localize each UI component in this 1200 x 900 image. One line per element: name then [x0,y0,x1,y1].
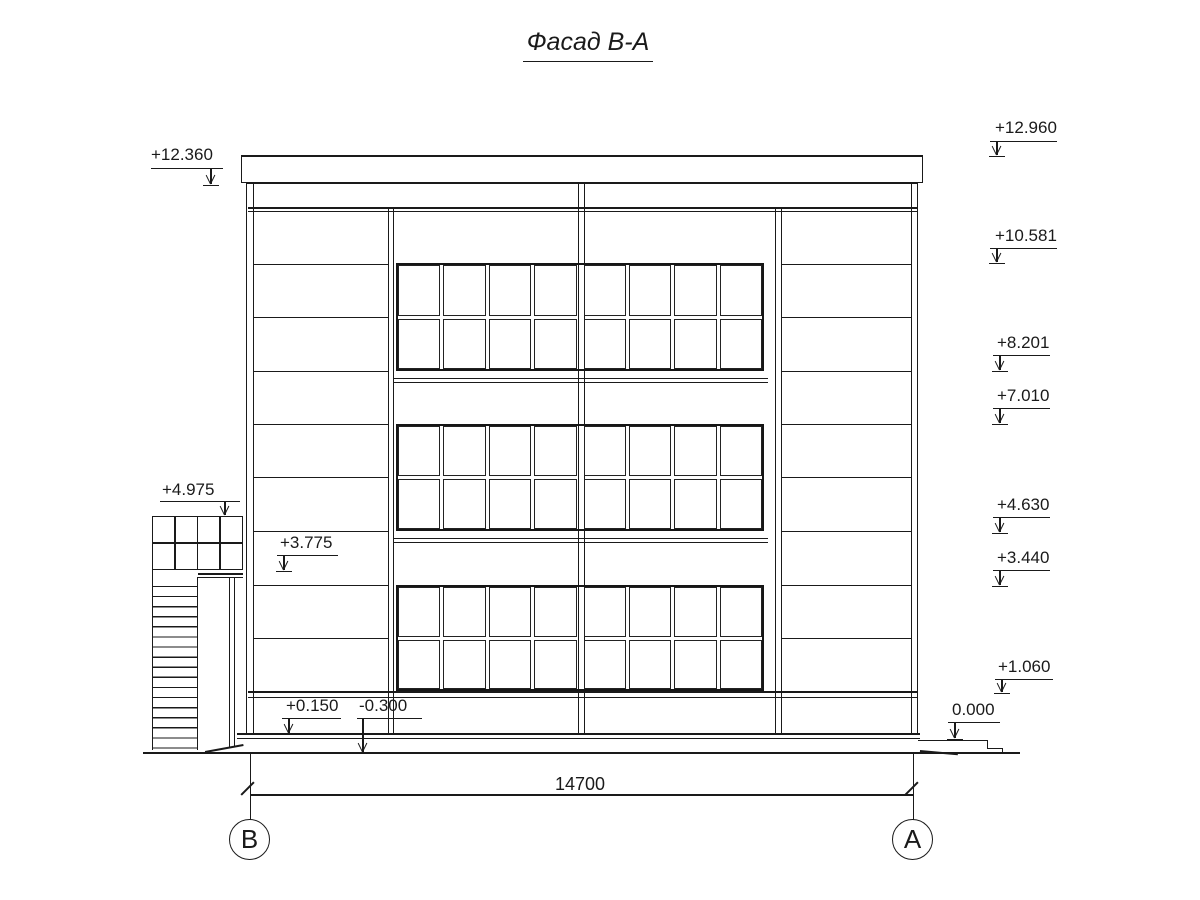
elevation-arrow-tick [992,533,1008,534]
window-pane [720,587,762,637]
stair-glazing-pane [153,517,174,542]
elevation-arrow-tick [994,693,1010,694]
porch-top-line [198,573,243,575]
elev-label-3440: +3.440 [997,549,1049,567]
window-pane [584,640,626,690]
elevation-arrow-tick [203,185,219,186]
elevation-arrow-tick [947,739,963,740]
elevation-underline [160,501,240,502]
stair-tower-glazing [152,516,243,570]
elev-label-m0300: -0.300 [359,697,407,715]
elevation-underline [993,355,1050,356]
elevation-arrow-tick [992,424,1008,425]
window-group-floor-1 [396,585,764,691]
ground-line [143,752,1020,754]
elevation-underline [995,679,1053,680]
window-pane [584,587,626,637]
window-pane [720,640,762,690]
window-pane [720,265,762,316]
axis-marker-B: В [229,819,270,860]
window-pane [584,265,626,316]
elev-label-0000: 0.000 [952,701,995,719]
elev-label-8201: +8.201 [997,334,1049,352]
window-grid [398,265,577,369]
window-pane [674,479,716,529]
facade-elevation-drawing: Фасад В-А +12.360 +4.975 +3.775 +0.150 -… [0,0,1200,900]
window-pane [584,479,626,529]
window-pane [534,640,576,690]
window-pane [534,587,576,637]
axis-letter-A: А [904,824,921,855]
elev-label-0150: +0.150 [286,697,338,715]
stair-glazing-pane [198,517,219,542]
window-pane [674,426,716,476]
porch-top-line [198,577,243,578]
window-pane [534,319,576,370]
window-pane [443,479,485,529]
elevation-underline [948,722,1000,723]
window-pane [443,319,485,370]
window-pane [584,319,626,370]
window-group-floor-2 [396,424,764,531]
window-pane [489,265,531,316]
window-group-floor-3 [396,263,764,371]
window-grid [398,587,577,689]
window-pane [489,587,531,637]
window-pane [489,479,531,529]
window-pane [534,265,576,316]
window-pane [720,426,762,476]
drawing-title: Фасад В-А [523,28,653,62]
window-pane [398,587,440,637]
window-pane [443,587,485,637]
elev-label-10581: +10.581 [995,227,1057,245]
elevation-underline [990,248,1057,249]
axis-marker-A: А [892,819,933,860]
stair-glazing-pane [176,517,197,542]
axis-letter-B: В [241,824,258,855]
elevation-underline [993,570,1050,571]
building-parapet [241,155,923,183]
elevation-arrow-tick [989,156,1005,157]
plinth-top-line [237,738,920,739]
window-pane [629,265,671,316]
window-center-mullion [577,587,584,689]
window-pane [489,426,531,476]
window-center-mullion [577,265,584,369]
window-grid [584,265,763,369]
window-pane [489,319,531,370]
door-frame-line [229,577,230,747]
window-pane [720,479,762,529]
window-pane [534,479,576,529]
elevation-underline [990,141,1057,142]
window-grid [584,587,763,689]
window-pane [674,640,716,690]
window-pane [398,319,440,370]
elev-label-4630: +4.630 [997,496,1049,514]
window-pane [443,265,485,316]
exterior-stairs [152,577,198,750]
elev-label-4975: +4.975 [162,481,214,499]
window-grid [584,426,763,529]
elevation-arrow-tick [992,586,1008,587]
window-pane [398,265,440,316]
window-pane [674,319,716,370]
entry-step-line [987,748,1003,749]
elevation-underline [151,168,223,169]
door-frame-line [234,577,235,747]
window-pane [720,319,762,370]
window-pane [629,319,671,370]
elevation-arrow-tick [992,371,1008,372]
window-grid [398,426,577,529]
window-pane [398,640,440,690]
window-pane [629,587,671,637]
window-pane [674,265,716,316]
stair-glazing-pane [221,544,242,569]
elev-label-3775: +3.775 [280,534,332,552]
stair-edge-line [152,570,153,577]
elev-label-1060: +1.060 [998,658,1050,676]
elev-label-12360: +12.360 [151,146,213,164]
dimension-value: 14700 [555,774,605,795]
window-pane [443,640,485,690]
window-center-mullion [577,426,584,529]
window-pane [443,426,485,476]
stair-glazing-pane [198,544,219,569]
elev-label-7010: +7.010 [997,387,1049,405]
elevation-underline [993,408,1050,409]
window-pane [629,426,671,476]
ramp-line [920,750,958,755]
stair-glazing-pane [176,544,197,569]
window-pane [398,479,440,529]
window-pane [534,426,576,476]
elevation-underline [993,517,1050,518]
window-pane [398,426,440,476]
window-pane [629,479,671,529]
stair-glazing-pane [221,517,242,542]
window-pane [489,640,531,690]
elevation-arrow-tick [355,753,371,754]
window-pane [629,640,671,690]
window-pane [584,426,626,476]
window-pane [674,587,716,637]
elev-label-12960: +12.960 [995,119,1057,137]
entry-step-line [918,740,987,741]
stair-glazing-pane [153,544,174,569]
elevation-arrow-tick [989,263,1005,264]
